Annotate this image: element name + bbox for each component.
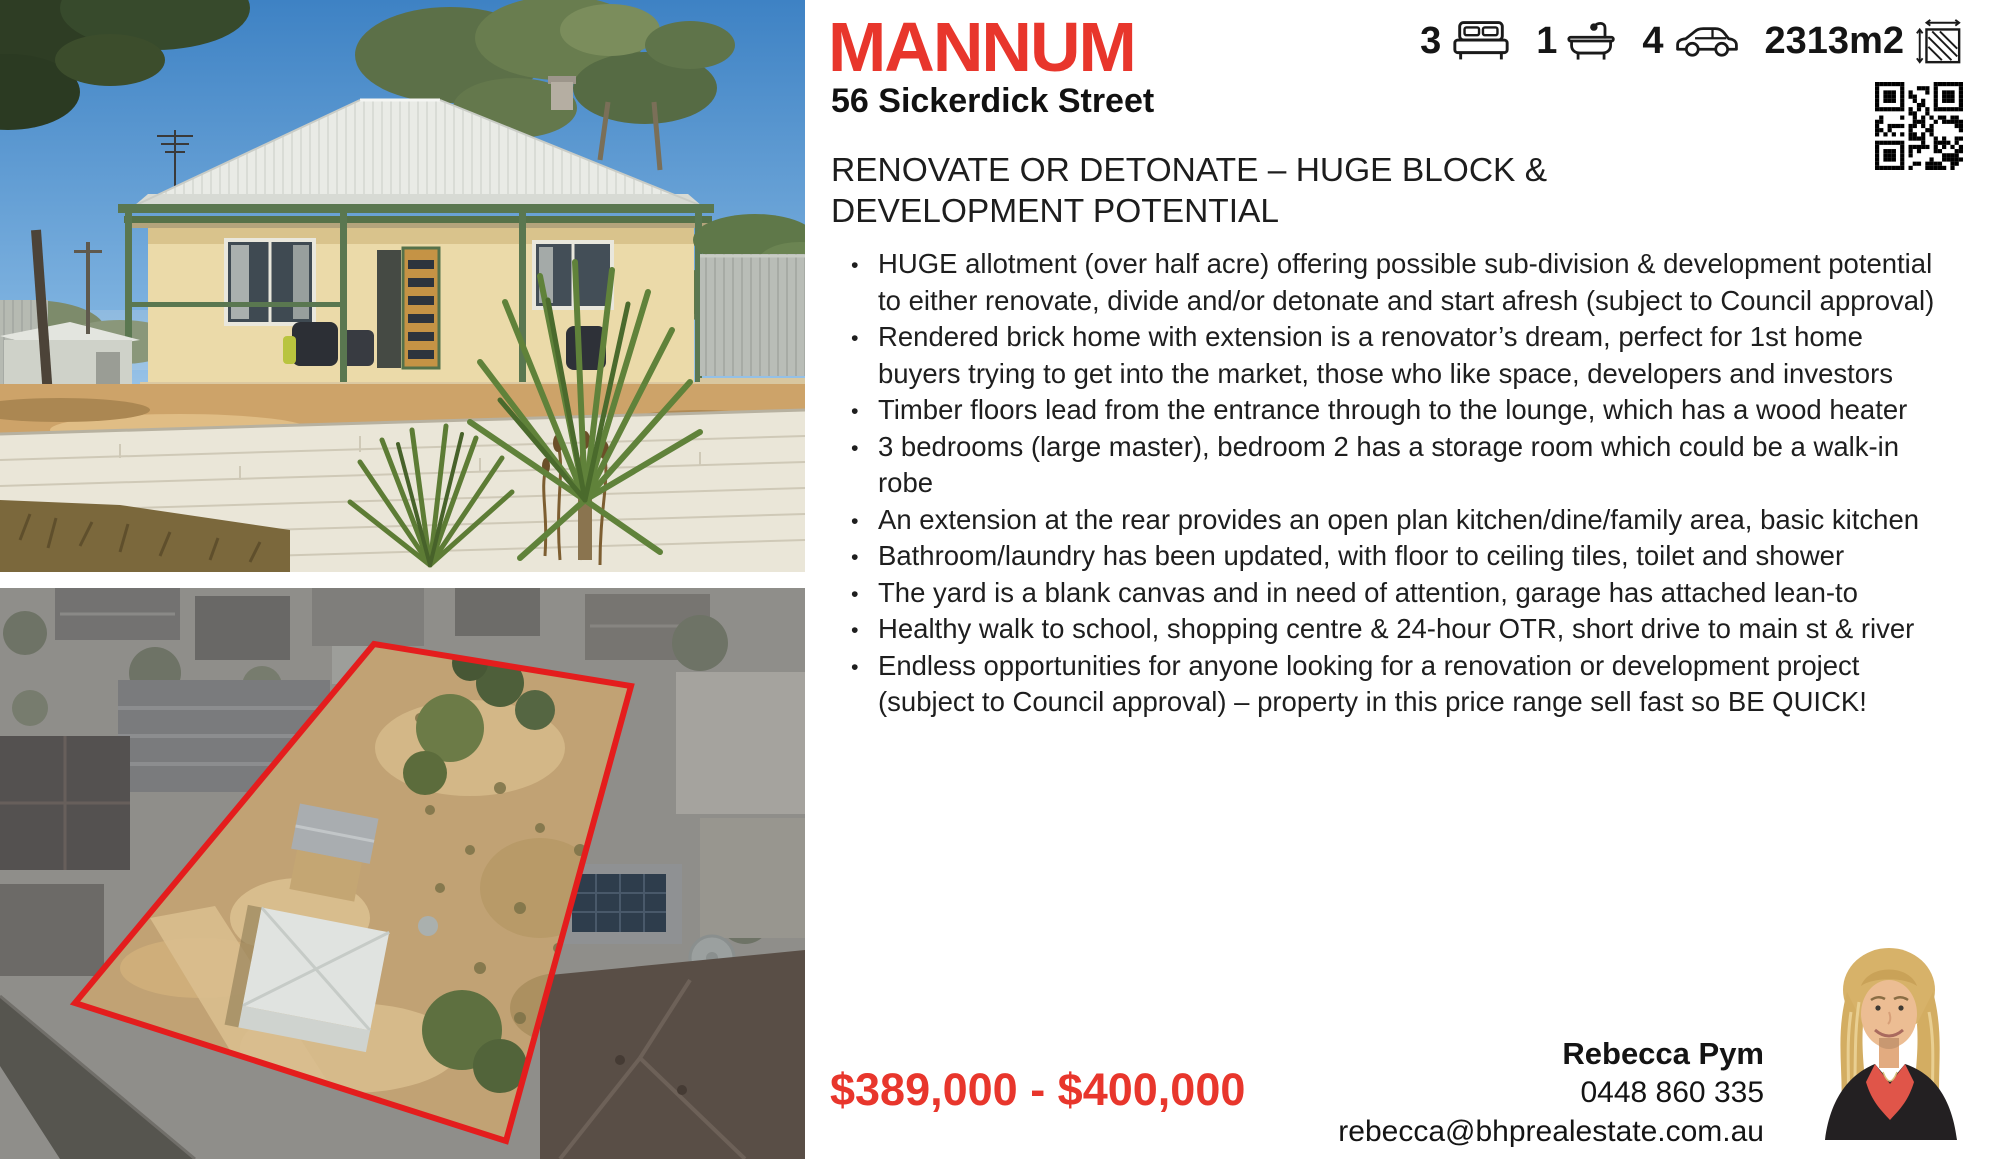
aerial-lot-illustration	[0, 588, 805, 1159]
feature-bullet: HUGE allotment (over half acre) offering…	[832, 246, 1944, 319]
landsize-value: 2313m2	[1765, 20, 1904, 63]
car-icon	[1673, 21, 1741, 61]
stat-bedrooms: 3	[1420, 19, 1512, 63]
street-address: 56 Sickerdick Street	[831, 82, 1154, 121]
feature-bullet: An extension at the rear provides an ope…	[832, 502, 1944, 539]
qr-code-icon	[1875, 82, 1963, 170]
bath-icon	[1566, 17, 1618, 65]
bathrooms-count: 1	[1536, 20, 1557, 63]
front-house-photo	[0, 0, 805, 572]
suburb-title: MANNUM	[828, 12, 1135, 82]
bedrooms-count: 3	[1420, 20, 1441, 63]
land-size-icon	[1913, 16, 1963, 66]
agent-email: rebecca@bhprealestate.com.au	[1338, 1112, 1764, 1151]
feature-bullet: Bathroom/laundry has been updated, with …	[832, 538, 1944, 575]
aerial-lot-photo	[0, 588, 805, 1159]
listing-headline: RENOVATE OR DETONATE – HUGE BLOCK & DEVE…	[831, 150, 1691, 232]
feature-bullet: The yard is a blank canvas and in need o…	[832, 575, 1944, 612]
stat-bathrooms: 1	[1536, 17, 1618, 65]
agent-photo	[1817, 932, 1963, 1140]
feature-bullet: 3 bedrooms (large master), bedroom 2 has…	[832, 429, 1944, 502]
front-house-illustration	[0, 0, 805, 572]
agent-details: Rebecca Pym 0448 860 335 rebecca@bhpreal…	[1338, 1034, 1764, 1151]
feature-list: HUGE allotment (over half acre) offering…	[832, 246, 1944, 721]
agent-name: Rebecca Pym	[1338, 1034, 1764, 1073]
feature-bullet: Timber floors lead from the entrance thr…	[832, 392, 1944, 429]
bed-icon	[1450, 19, 1512, 63]
price-range: $389,000 - $400,000	[830, 1064, 1245, 1116]
agent-portrait-illustration	[1817, 932, 1963, 1140]
stat-landsize: 2313m2	[1765, 16, 1963, 66]
qr-code	[1875, 82, 1963, 170]
feature-bullet: Rendered brick home with extension is a …	[832, 319, 1944, 392]
stat-carspaces: 4	[1642, 20, 1740, 63]
property-stats: 3 1 4	[1420, 16, 1963, 66]
feature-bullet: Healthy walk to school, shopping centre …	[832, 611, 1944, 648]
feature-bullet: Endless opportunities for anyone looking…	[832, 648, 1944, 721]
agent-phone: 0448 860 335	[1338, 1073, 1764, 1112]
carspaces-count: 4	[1642, 20, 1663, 63]
